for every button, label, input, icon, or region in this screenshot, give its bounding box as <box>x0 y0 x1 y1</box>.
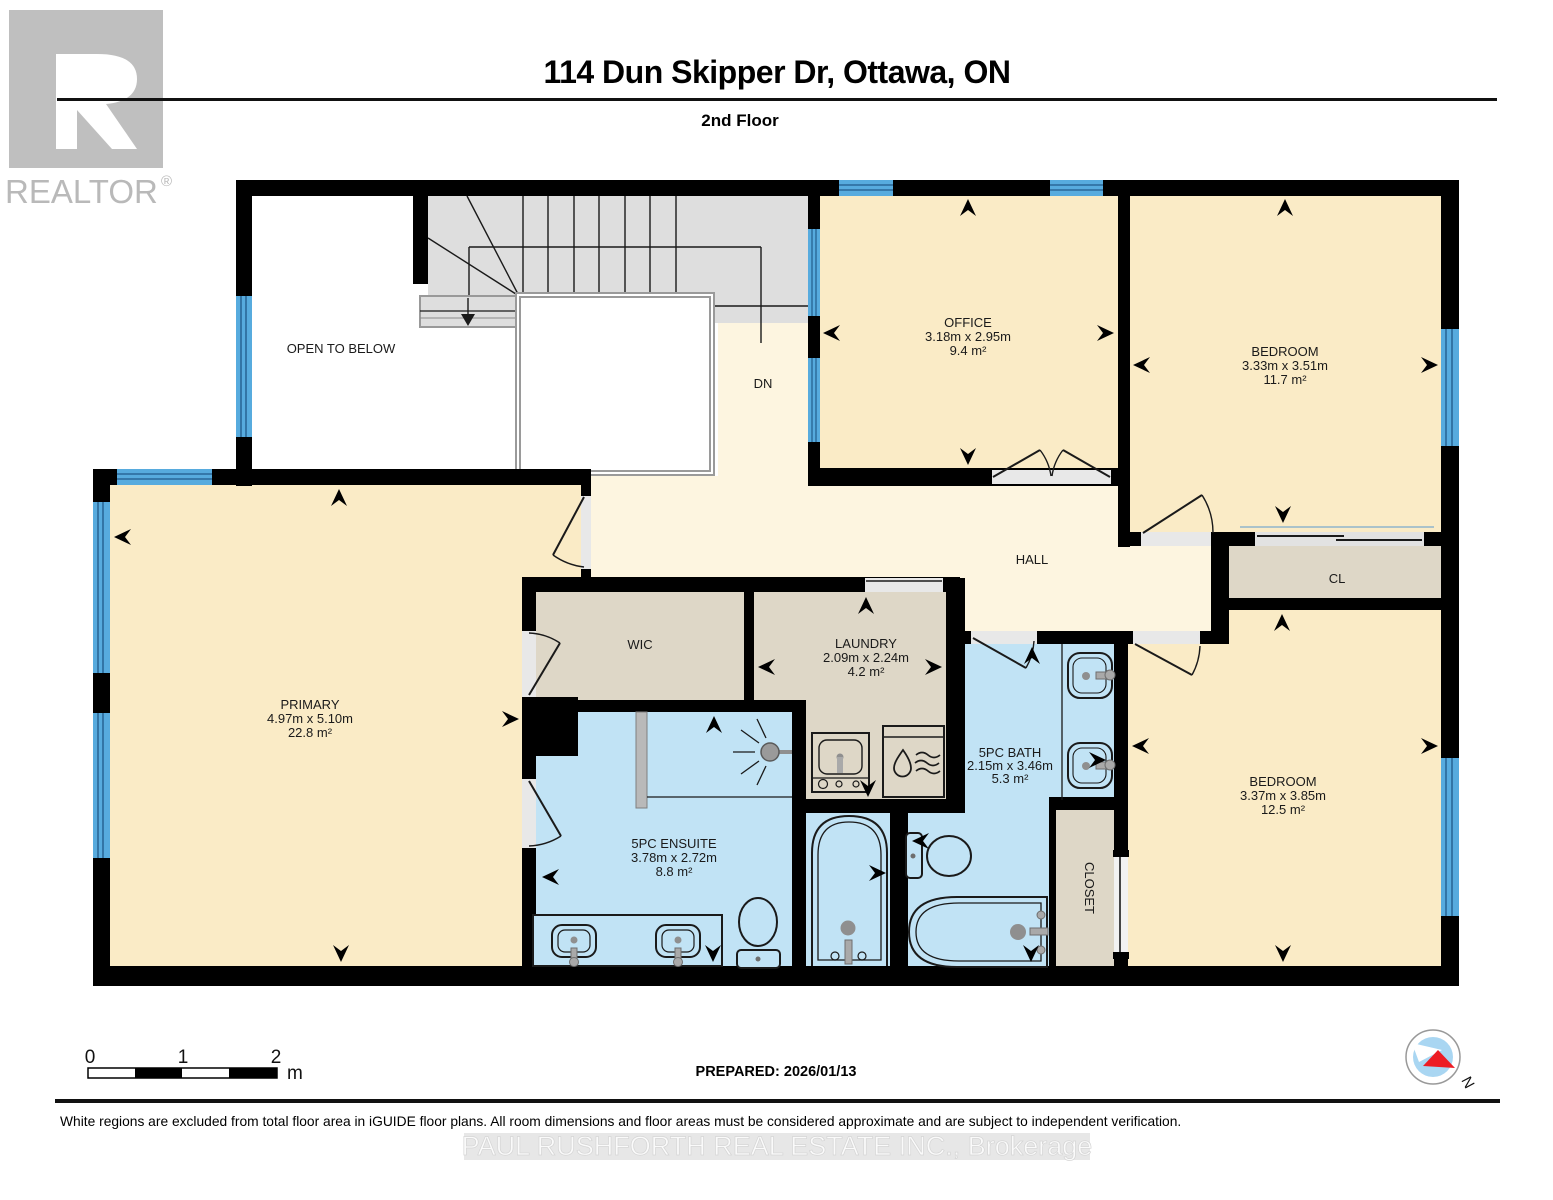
svg-text:3.33m x 3.51m: 3.33m x 3.51m <box>1242 358 1328 373</box>
svg-text:2nd Floor: 2nd Floor <box>701 111 779 130</box>
svg-text:11.7 m²: 11.7 m² <box>1263 372 1307 387</box>
svg-text:9.4 m²: 9.4 m² <box>950 343 988 358</box>
svg-text:22.8 m²: 22.8 m² <box>288 725 333 740</box>
svg-text:12.5 m²: 12.5 m² <box>1261 802 1306 817</box>
svg-text:HALL: HALL <box>1016 552 1049 567</box>
svg-text:OFFICE: OFFICE <box>944 315 992 330</box>
svg-text:1: 1 <box>178 1047 189 1068</box>
svg-text:3.18m x 2.95m: 3.18m x 2.95m <box>925 329 1011 344</box>
svg-text:WIC: WIC <box>627 637 652 652</box>
svg-text:®: ® <box>161 173 172 190</box>
svg-text:PREPARED: 2026/01/13: PREPARED: 2026/01/13 <box>696 1064 857 1080</box>
svg-text:OPEN TO BELOW: OPEN TO BELOW <box>287 341 396 356</box>
svg-text:White regions are excluded fro: White regions are excluded from total fl… <box>60 1114 1181 1129</box>
svg-text:2.09m x 2.24m: 2.09m x 2.24m <box>823 650 909 665</box>
svg-text:2: 2 <box>271 1047 282 1068</box>
svg-text:m: m <box>287 1063 303 1084</box>
svg-text:4.2 m²: 4.2 m² <box>848 664 886 679</box>
svg-text:BEDROOM: BEDROOM <box>1249 774 1316 789</box>
svg-text:LAUNDRY: LAUNDRY <box>835 636 897 651</box>
svg-text:CLOSET: CLOSET <box>1082 862 1097 914</box>
svg-text:PRIMARY: PRIMARY <box>281 697 340 712</box>
svg-text:8.8 m²: 8.8 m² <box>656 864 694 879</box>
svg-text:5PC ENSUITE: 5PC ENSUITE <box>631 836 717 851</box>
svg-text:5.3 m²: 5.3 m² <box>992 771 1030 786</box>
svg-text:BEDROOM: BEDROOM <box>1251 344 1318 359</box>
svg-text:0: 0 <box>85 1047 96 1068</box>
svg-text:DN: DN <box>754 376 773 391</box>
svg-text:PAUL RUSHFORTH REAL ESTATE INC: PAUL RUSHFORTH REAL ESTATE INC., Brokera… <box>462 1131 1093 1161</box>
svg-text:114 Dun Skipper Dr, Ottawa, ON: 114 Dun Skipper Dr, Ottawa, ON <box>544 54 1011 90</box>
svg-text:CL: CL <box>1329 571 1346 586</box>
svg-text:3.78m x 2.72m: 3.78m x 2.72m <box>631 850 717 865</box>
svg-text:4.97m x 5.10m: 4.97m x 5.10m <box>267 711 353 726</box>
svg-text:3.37m x 3.85m: 3.37m x 3.85m <box>1240 788 1326 803</box>
svg-text:REALTOR: REALTOR <box>5 173 158 210</box>
